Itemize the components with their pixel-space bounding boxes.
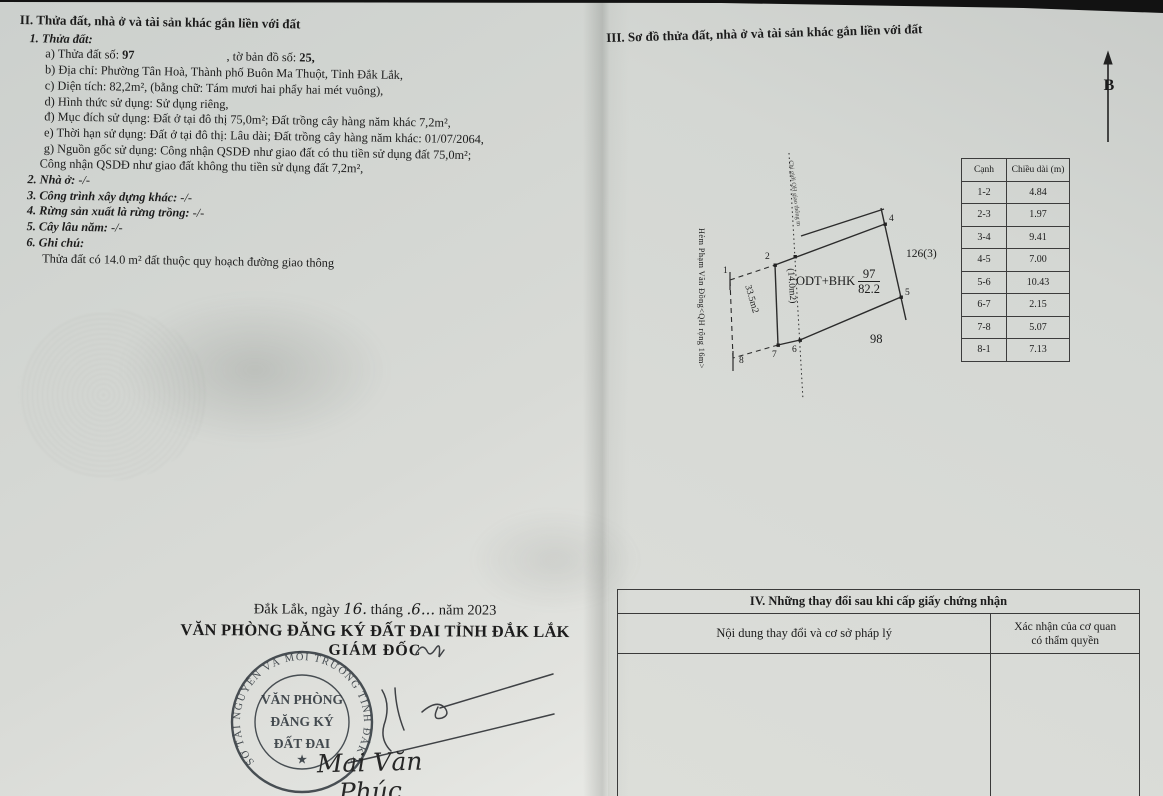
parcel-bottom-edge xyxy=(778,297,901,345)
point-label-2: 2 xyxy=(765,252,770,262)
signer-name: Mai Văn Phúc xyxy=(284,746,455,796)
neighbor-parcel-bottom: 98 xyxy=(870,332,883,347)
edge-length-table: Cạnh Chiều dài (m) 1-24.842-31.973-49.41… xyxy=(961,158,1070,362)
edge-table-header-side: Cạnh xyxy=(962,159,1007,182)
handwritten-month: .6... xyxy=(406,600,435,618)
dashed-edge-1-2 xyxy=(730,265,775,280)
neighbor-parcel-right: 126(3) xyxy=(906,248,937,260)
point-label-6: 6 xyxy=(792,345,797,355)
edge-table-row: 1-24.84 xyxy=(962,181,1070,204)
north-label: B xyxy=(1099,77,1119,95)
point-label-7: 7 xyxy=(772,350,777,360)
date-line: Đắk Lắk, ngày 16. tháng .6... năm 2023 xyxy=(150,599,600,620)
paper-stain xyxy=(470,510,640,610)
parcel-number-value: 97 xyxy=(122,48,135,62)
scanned-land-certificate: II. Thửa đất, nhà ở và tài sản khác gắn … xyxy=(0,0,1163,796)
section-4-table: IV. Những thay đổi sau khi cấp giấy chứn… xyxy=(617,589,1140,796)
section-4-title: IV. Những thay đổi sau khi cấp giấy chứn… xyxy=(618,590,1139,614)
section-4-col2-header: Xác nhận của cơ quan có thẩm quyền xyxy=(991,614,1139,653)
section-4-col1-header: Nội dung thay đổi và cơ sở pháp lý xyxy=(618,614,991,653)
edge-table-body: 1-24.842-31.973-49.414-57.005-610.436-72… xyxy=(962,181,1070,361)
neighbor-parallel-line xyxy=(801,209,884,236)
edge-table-row: 7-85.07 xyxy=(962,316,1070,339)
section-2-block: II. Thửa đất, nhà ở và tài sản khác gắn … xyxy=(16,12,595,275)
edge-table-row: 5-610.43 xyxy=(962,271,1070,294)
edge-table-row: 8-17.13 xyxy=(962,339,1070,362)
edge-table-header-length: Chiều dài (m) xyxy=(1007,159,1070,182)
edge-table-row: 2-31.97 xyxy=(962,204,1070,227)
parcel-top-edge xyxy=(775,224,885,265)
parcel-left-edge xyxy=(775,265,778,345)
edge-table-row: 3-49.41 xyxy=(962,226,1070,249)
paper-stain xyxy=(18,310,208,480)
alley-name-label: Hẻm Phạm Văn Đồng<QH rộng 16m> xyxy=(697,228,706,369)
usage-code: ODT+BHK xyxy=(796,274,855,289)
edge-table-row: 4-57.00 xyxy=(962,249,1070,272)
dashed-edge-8-1 xyxy=(730,280,733,358)
parcel-number-area-fraction: 97 82.2 xyxy=(858,267,880,296)
north-arrow-icon xyxy=(1096,50,1120,150)
handwritten-day: 16. xyxy=(343,600,367,618)
section-4-body-col2 xyxy=(991,654,1139,796)
parcel-usage-label: ODT+BHK 97 82.2 xyxy=(796,267,880,296)
point-label-4: 4 xyxy=(889,214,894,224)
issuing-office: VĂN PHÒNG ĐĂNG KÝ ĐẤT ĐAI TỈNH ĐẮK LẮK xyxy=(150,620,600,642)
map-sheet-value: 25, xyxy=(299,51,315,65)
point-label-1: 1 xyxy=(723,266,728,276)
edge-table-row: 6-72.15 xyxy=(962,294,1070,317)
point-label-8: 8 xyxy=(739,356,744,366)
point-label-5: 5 xyxy=(905,288,910,298)
section-4-body-col1 xyxy=(618,654,991,796)
